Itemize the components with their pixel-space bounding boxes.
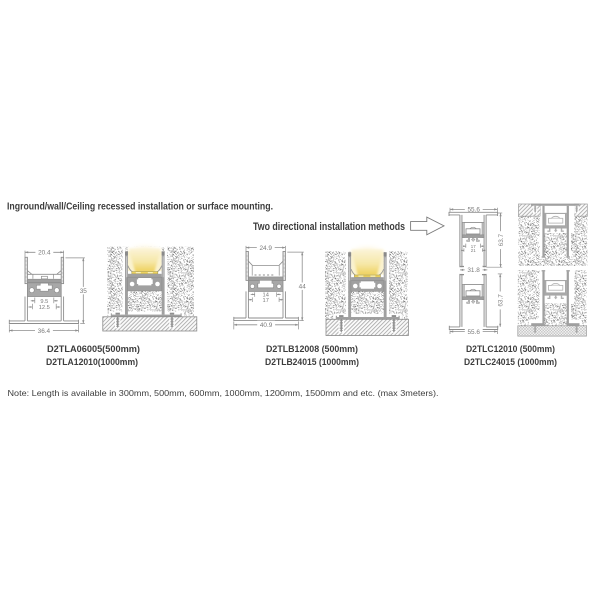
svg-text:D2TLA06005(500mm): D2TLA06005(500mm)	[47, 344, 140, 355]
svg-text:63.7: 63.7	[498, 294, 505, 307]
svg-text:D2TLA12010(1000mm): D2TLA12010(1000mm)	[46, 357, 138, 368]
svg-text:36.4: 36.4	[38, 328, 51, 335]
svg-text:D2TLC12010 (500mm): D2TLC12010 (500mm)	[466, 344, 555, 355]
svg-text:55.6: 55.6	[467, 329, 480, 336]
svg-text:40.9: 40.9	[260, 322, 273, 329]
svg-text:63.7: 63.7	[498, 233, 505, 246]
svg-text:21: 21	[471, 248, 476, 253]
svg-text:31.8: 31.8	[467, 267, 480, 274]
svg-text:44: 44	[299, 284, 307, 291]
svg-text:9.5: 9.5	[40, 299, 48, 305]
svg-text:Two directional installation m: Two directional installation methods	[253, 221, 405, 233]
svg-text:24.9: 24.9	[259, 245, 272, 252]
svg-text:D2TLC24015 (1000mm): D2TLC24015 (1000mm)	[464, 357, 557, 368]
svg-text:20.4: 20.4	[38, 250, 51, 257]
svg-text:D2TLB12008 (500mm): D2TLB12008 (500mm)	[266, 344, 358, 355]
svg-text:17: 17	[263, 298, 269, 304]
svg-text:35: 35	[80, 288, 88, 295]
svg-text:Note: Length is available in 3: Note: Length is available in 300mm, 500m…	[8, 388, 439, 398]
svg-text:12.5: 12.5	[39, 305, 50, 311]
svg-text:D2TLB24015 (1000mm): D2TLB24015 (1000mm)	[265, 357, 359, 368]
svg-text:Inground/wall/Ceiling recessed: Inground/wall/Ceiling recessed installat…	[7, 202, 273, 213]
